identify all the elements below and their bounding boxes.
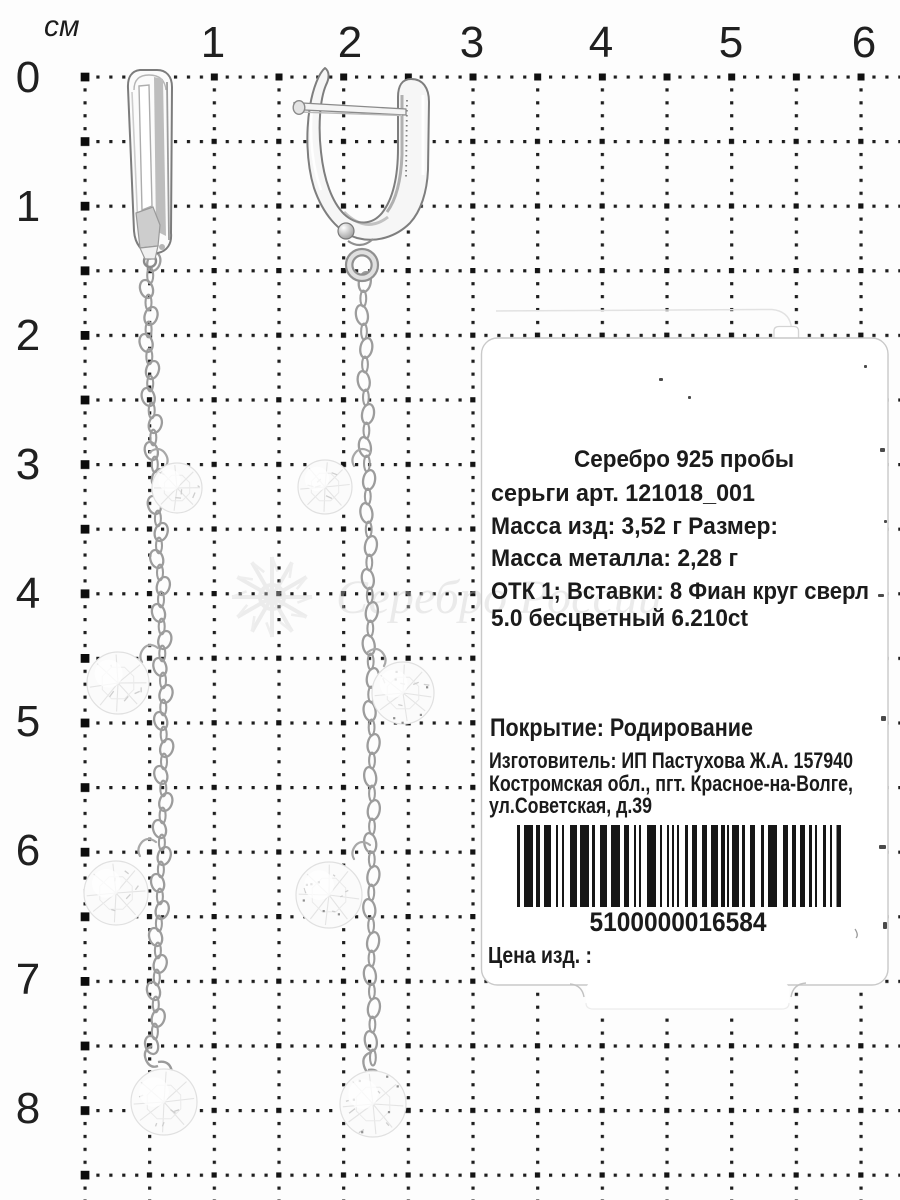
svg-text:6: 6 bbox=[852, 18, 876, 67]
svg-text:5: 5 bbox=[16, 697, 40, 746]
svg-text:3: 3 bbox=[460, 18, 484, 67]
svg-text:1: 1 bbox=[16, 182, 40, 231]
svg-text:Масса металла: 2,28 г: Масса металла: 2,28 г bbox=[491, 545, 738, 572]
svg-text:ОТК 1; Вставки: 8 Фиан круг св: ОТК 1; Вставки: 8 Фиан круг сверл bbox=[491, 578, 869, 605]
svg-text:3: 3 bbox=[16, 440, 40, 489]
svg-text:ул.Советская, д.39: ул.Советская, д.39 bbox=[489, 793, 652, 818]
svg-text:см: см bbox=[44, 10, 80, 43]
svg-text:Серебро 925 пробы: Серебро 925 пробы bbox=[574, 446, 794, 473]
svg-text:6: 6 bbox=[16, 826, 40, 875]
svg-text:1: 1 bbox=[201, 18, 225, 67]
svg-text:8: 8 bbox=[16, 1084, 40, 1133]
svg-text:5100000016584: 5100000016584 bbox=[590, 907, 767, 937]
svg-text:Изготовитель: ИП Пастухова Ж.А: Изготовитель: ИП Пастухова Ж.А. 157940 bbox=[489, 748, 853, 773]
svg-text:5: 5 bbox=[719, 18, 743, 67]
svg-text:2: 2 bbox=[16, 311, 40, 360]
svg-text:5.0 бесцветный 6.210ct: 5.0 бесцветный 6.210ct bbox=[491, 605, 748, 632]
svg-text:Покрытие: Родирование: Покрытие: Родирование bbox=[490, 714, 753, 742]
svg-text:4: 4 bbox=[16, 569, 40, 618]
svg-text:2: 2 bbox=[338, 18, 362, 67]
svg-text:4: 4 bbox=[589, 18, 613, 67]
svg-text:7: 7 bbox=[16, 955, 40, 1004]
svg-text:Масса изд: 3,52 г Размер:: Масса изд: 3,52 г Размер: bbox=[491, 513, 778, 540]
svg-text:Цена изд. :: Цена изд. : bbox=[488, 942, 592, 968]
svg-text:серьги арт. 121018_001: серьги арт. 121018_001 bbox=[491, 480, 755, 507]
svg-text:0: 0 bbox=[16, 53, 40, 102]
